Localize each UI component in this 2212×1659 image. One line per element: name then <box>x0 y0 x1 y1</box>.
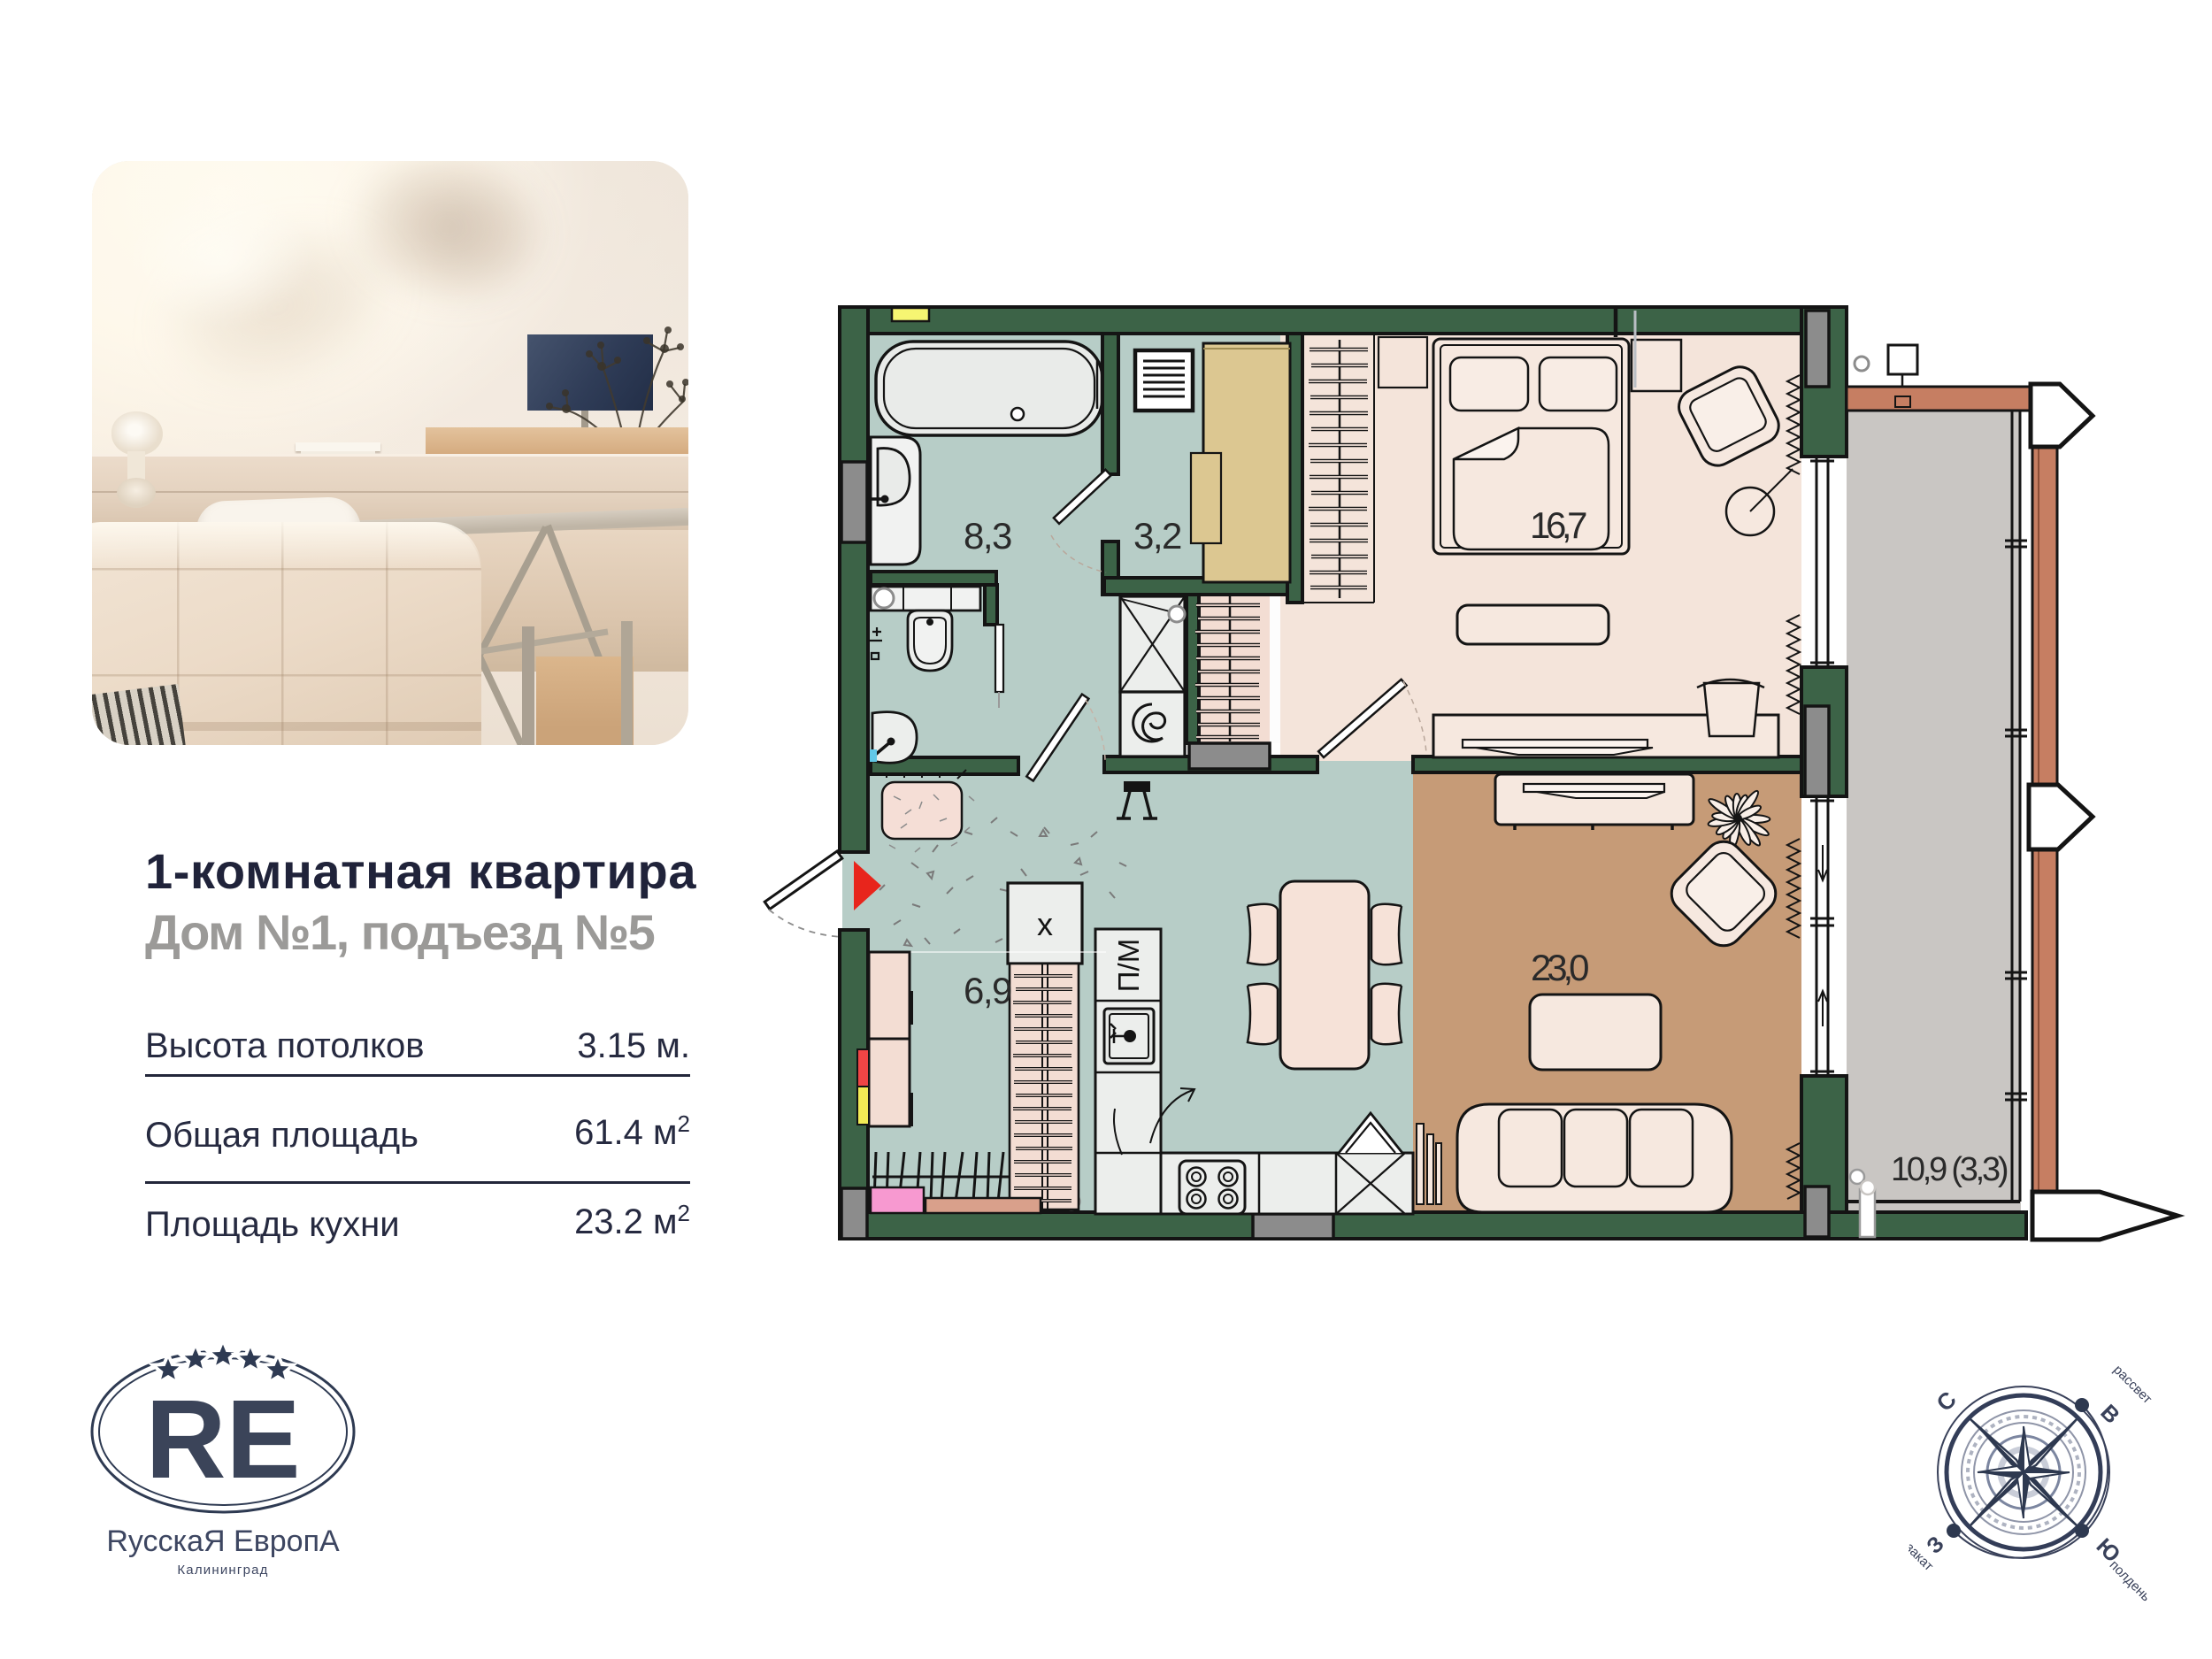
svg-text:Калининград: Калининград <box>177 1563 268 1578</box>
svg-text:рассвет: рассвет <box>2110 1363 2154 1407</box>
svg-text:полдень: полдень <box>2107 1557 2154 1604</box>
svg-text:23,0: 23,0 <box>1531 947 1588 988</box>
svg-text:8,3: 8,3 <box>964 515 1011 557</box>
svg-text:16,7: 16,7 <box>1530 504 1586 546</box>
svg-text:П/М: П/М <box>1112 939 1145 992</box>
svg-text:С: С <box>1931 1386 1962 1417</box>
svg-text:RE: RE <box>145 1377 300 1502</box>
svg-text:10,9 (3,3): 10,9 (3,3) <box>1891 1151 2008 1188</box>
svg-text:6,9: 6,9 <box>964 970 1011 1011</box>
svg-text:В: В <box>2095 1400 2124 1429</box>
svg-text:RусскаЯ ЕвропА: RусскаЯ ЕвропА <box>106 1525 340 1558</box>
svg-text:3,2: 3,2 <box>1133 515 1181 557</box>
svg-text:х: х <box>1037 906 1053 942</box>
